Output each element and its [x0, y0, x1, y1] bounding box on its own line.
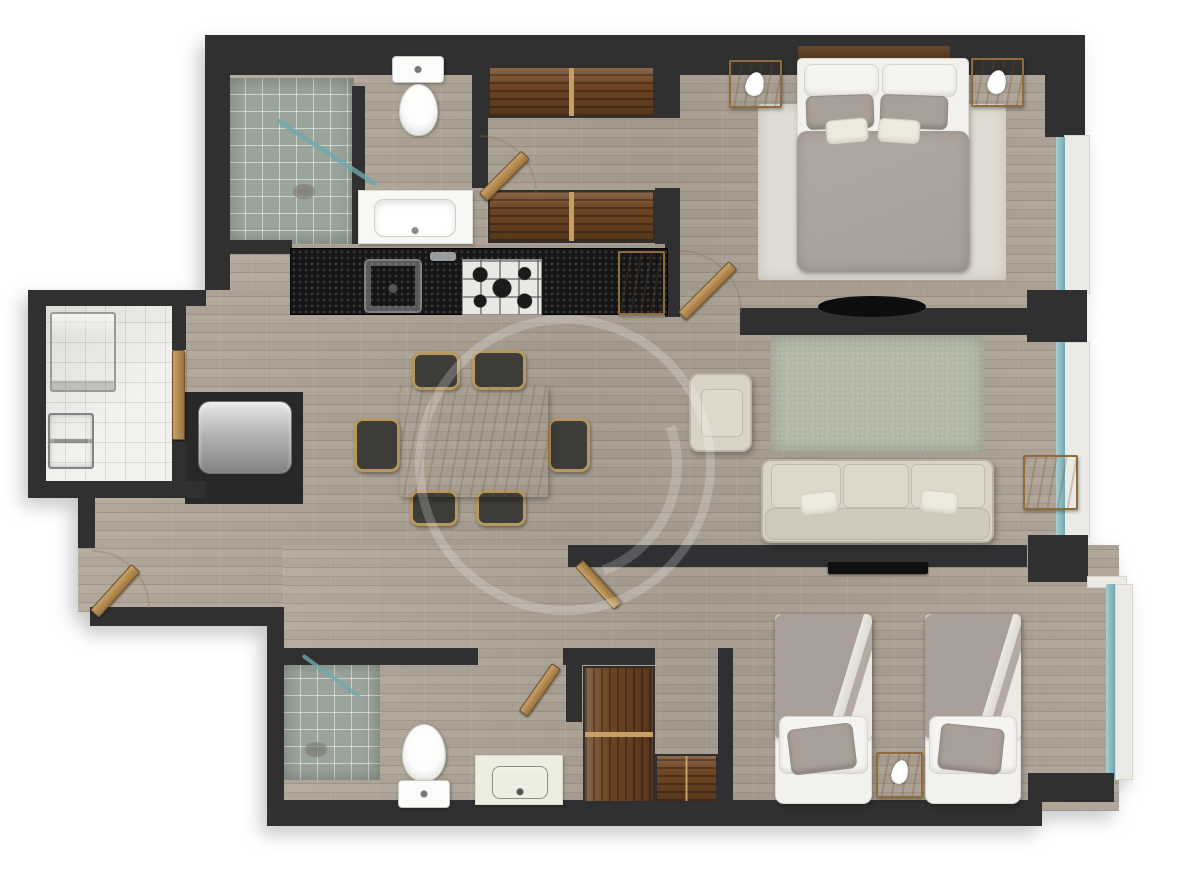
toilet-tank-main-bath — [392, 56, 444, 83]
window-sill-master — [1064, 135, 1090, 294]
master-closet-top — [488, 66, 655, 118]
wall-bedroom2-closet — [718, 648, 733, 820]
wall-pillar-mid-right — [1027, 290, 1087, 342]
sofa-pillow-right — [919, 489, 959, 515]
wall-laundry-door-upper — [172, 306, 186, 350]
shower-floor-second-bath — [283, 662, 380, 780]
master-cushion-left — [825, 117, 869, 145]
shower-drain-main-bath — [293, 184, 315, 199]
wall-bottom — [270, 800, 1042, 826]
screenshot-root — [0, 0, 1200, 883]
vanity-basin-second-bath — [492, 766, 548, 799]
kitchen-cabinet — [618, 251, 665, 315]
master-pillow-left — [804, 64, 879, 97]
sofa-back — [765, 508, 990, 540]
bed2-right-pillow-gray — [937, 723, 1005, 775]
wall-left-step-horizontal — [90, 607, 284, 626]
wall-top-right-corner — [1045, 35, 1085, 137]
window-glass-bedroom2 — [1106, 584, 1115, 780]
dining-chair-left — [354, 418, 400, 472]
washing-machine — [50, 312, 116, 392]
wall-bottom-right-step — [1028, 773, 1114, 802]
wall-laundry-door-lower — [172, 438, 186, 483]
window-glass-master — [1056, 137, 1065, 292]
laundry-door — [172, 350, 185, 440]
wall-laundry-bottom — [28, 481, 206, 498]
wall-upper-left — [205, 35, 230, 290]
sofa-cushion-2 — [843, 464, 909, 508]
tv-bedroom2 — [828, 562, 928, 574]
wall-entry-stub — [78, 495, 95, 548]
side-table — [1023, 455, 1078, 510]
sofa-pillow-left — [799, 490, 839, 516]
toilet-bowl-main-bath — [399, 84, 438, 136]
wall-closet-bottom-end — [655, 188, 680, 244]
vanity-basin-main-bath — [374, 199, 456, 237]
toilet-bowl-second-bath — [402, 724, 446, 782]
master-closet-bottom — [488, 190, 655, 243]
apartment-floor-plan — [0, 0, 1200, 883]
kitchen-stove — [462, 259, 542, 315]
bed2-left-pillow-gray — [786, 722, 857, 776]
window-sill-bedroom2 — [1115, 584, 1133, 780]
wall-laundry-left — [28, 290, 46, 497]
living-room-rug — [770, 336, 984, 452]
tv-master-bedroom — [818, 296, 926, 317]
bedroom2-closet-horizontal — [655, 754, 718, 803]
kitchen-faucet — [430, 252, 456, 261]
wall-bath2-right — [566, 648, 582, 722]
master-cushion-right — [877, 118, 921, 145]
wall-pillar-living-bedroom2 — [1028, 535, 1088, 582]
toilet-tank-second-bath — [398, 780, 450, 808]
master-pillow-right — [882, 64, 957, 97]
water-heater — [198, 401, 292, 474]
shower-drain-second-bath — [305, 742, 327, 757]
wall-under-vanity — [228, 240, 292, 254]
wall-closet-top-end — [655, 64, 680, 118]
wall-left-step-vertical — [267, 607, 284, 826]
kitchen-sink — [364, 259, 422, 313]
bedroom2-closet-vertical — [583, 666, 655, 803]
laundry-sink — [48, 413, 94, 469]
wall-laundry-top — [28, 290, 206, 306]
master-duvet — [797, 131, 969, 271]
